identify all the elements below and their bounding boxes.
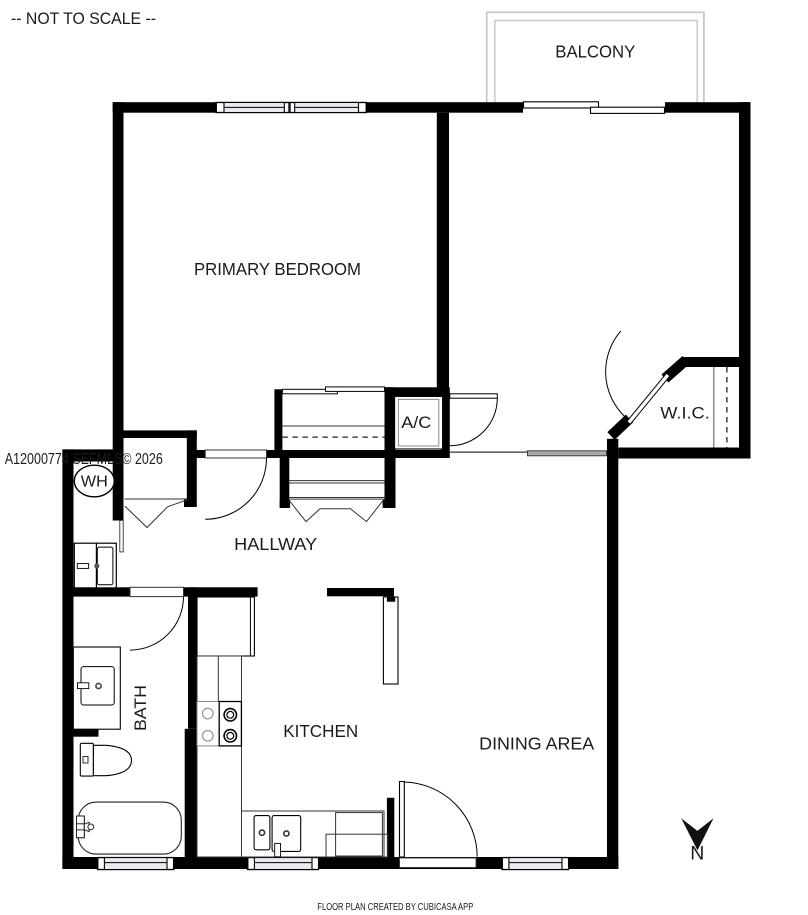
svg-text:A12000774 SEFMLS© 2026: A12000774 SEFMLS© 2026 [5,451,163,468]
svg-text:-- NOT TO SCALE --: -- NOT TO SCALE -- [11,9,156,28]
svg-text:DINING AREA: DINING AREA [479,734,594,754]
svg-text:FLOOR PLAN CREATED BY CUBICASA: FLOOR PLAN CREATED BY CUBICASA APP [317,901,473,913]
svg-text:N: N [690,843,704,865]
svg-text:KITCHEN: KITCHEN [283,721,358,741]
svg-text:PRIMARY BEDROOM: PRIMARY BEDROOM [194,259,361,279]
svg-text:W.I.C.: W.I.C. [660,405,710,423]
svg-text:A/C: A/C [401,414,431,432]
svg-text:BATH: BATH [132,685,150,731]
svg-text:HALLWAY: HALLWAY [234,534,317,554]
svg-text:WH: WH [81,474,108,491]
svg-text:BALCONY: BALCONY [555,42,635,62]
